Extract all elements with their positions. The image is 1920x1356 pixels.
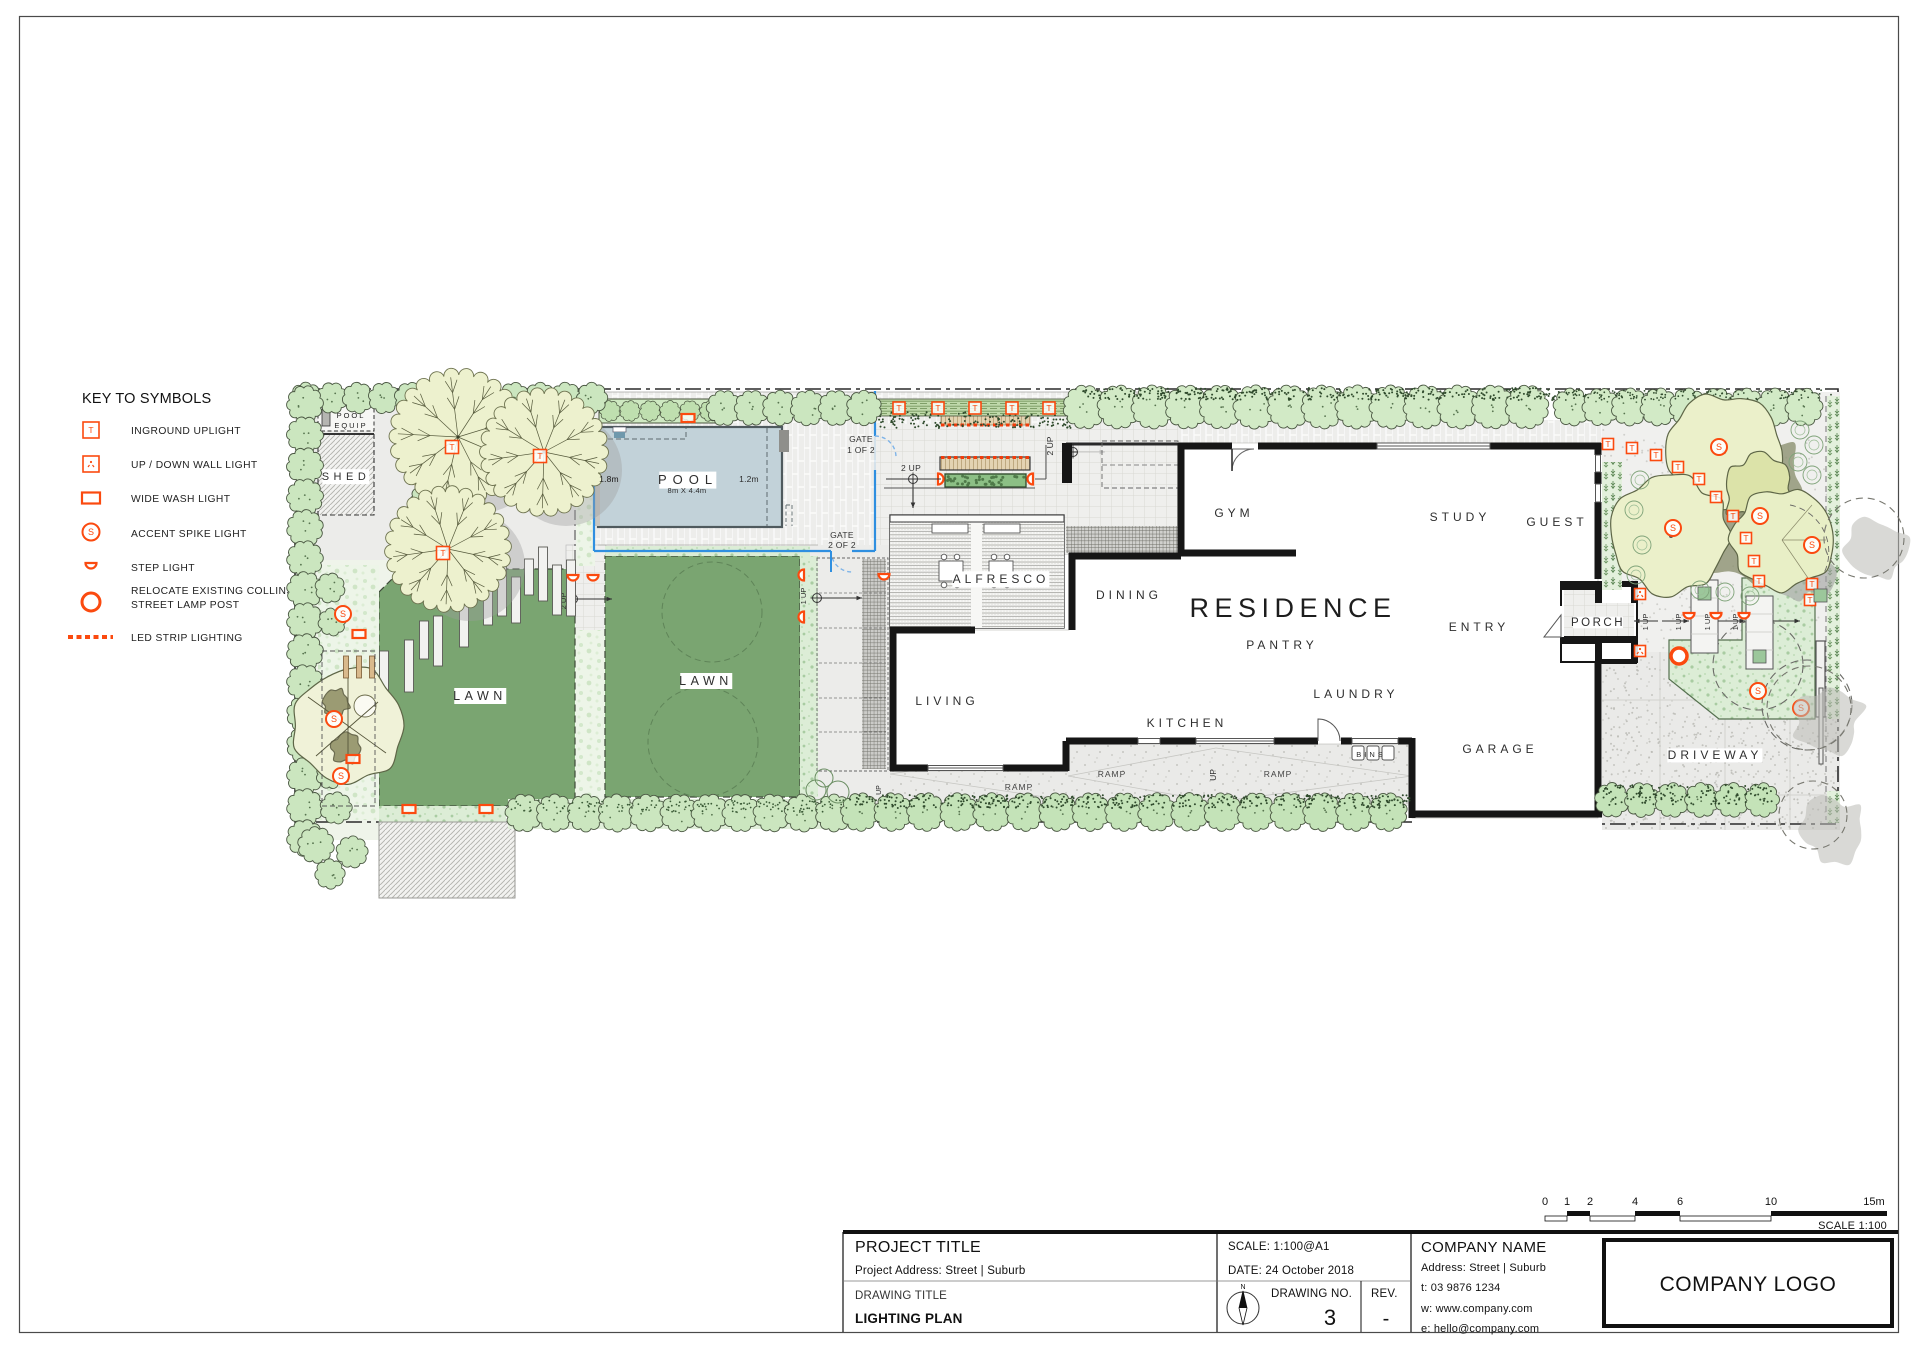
svg-text:15m: 15m	[1863, 1196, 1884, 1208]
svg-text:BINS: BINS	[1356, 750, 1386, 759]
svg-text:SHED: SHED	[322, 471, 371, 483]
svg-text:ENTRY: ENTRY	[1449, 620, 1509, 634]
svg-text:PROJECT TITLE: PROJECT TITLE	[855, 1239, 981, 1256]
svg-text:T: T	[1696, 474, 1701, 484]
svg-text:1 UP: 1 UP	[1641, 614, 1650, 631]
svg-text:S: S	[340, 609, 346, 619]
svg-text:DATE: 24 October 2018: DATE: 24 October 2018	[1228, 1265, 1354, 1277]
svg-text:S: S	[1716, 442, 1722, 452]
svg-text:PORCH: PORCH	[1571, 617, 1625, 629]
svg-text:GARAGE: GARAGE	[1462, 742, 1537, 756]
svg-text:POOL: POOL	[658, 472, 718, 487]
svg-text:t: 03 9876 1234: t: 03 9876 1234	[1421, 1282, 1500, 1294]
svg-text:UP: UP	[1208, 769, 1218, 781]
svg-text:T: T	[1756, 576, 1761, 586]
svg-text:2 OF 2: 2 OF 2	[828, 540, 856, 550]
svg-text:S: S	[1757, 511, 1763, 521]
svg-text:T: T	[1751, 556, 1756, 566]
svg-text:GATE: GATE	[849, 434, 873, 444]
svg-text:LED STRIP LIGHTING: LED STRIP LIGHTING	[131, 633, 243, 644]
svg-text:STEP LIGHT: STEP LIGHT	[131, 563, 195, 574]
svg-text:3: 3	[1324, 1305, 1336, 1330]
svg-text:6: 6	[1677, 1196, 1683, 1208]
svg-text:1 OF 2: 1 OF 2	[847, 445, 875, 455]
svg-text:-: -	[1383, 1308, 1390, 1330]
svg-text:LAWN: LAWN	[679, 674, 733, 688]
svg-text:1 UP: 1 UP	[1674, 614, 1683, 631]
svg-text:T: T	[1605, 439, 1610, 449]
svg-text:T: T	[1713, 492, 1718, 502]
svg-text:DRIVEWAY: DRIVEWAY	[1668, 748, 1763, 762]
svg-text:RAMP: RAMP	[1005, 782, 1034, 792]
svg-text:LAWN: LAWN	[453, 689, 507, 703]
svg-text:DRAWING TITLE: DRAWING TITLE	[855, 1290, 947, 1302]
svg-text:Project Address: Street | Subu: Project Address: Street | Suburb	[855, 1265, 1025, 1277]
svg-text:UP / DOWN WALL LIGHT: UP / DOWN WALL LIGHT	[131, 460, 258, 471]
svg-text:10: 10	[1765, 1196, 1777, 1208]
svg-text:KEY TO SYMBOLS: KEY TO SYMBOLS	[82, 391, 211, 407]
svg-text:T: T	[537, 451, 542, 461]
svg-text:T: T	[1809, 579, 1814, 589]
svg-text:8m X 4.4m: 8m X 4.4m	[668, 486, 707, 495]
svg-text:REV.: REV.	[1371, 1288, 1398, 1300]
svg-text:RAMP: RAMP	[1098, 769, 1127, 779]
svg-text:COMPANY NAME: COMPANY NAME	[1421, 1239, 1547, 1256]
svg-text:LAUNDRY: LAUNDRY	[1313, 687, 1398, 701]
svg-text:N: N	[1240, 1284, 1245, 1291]
svg-text:T: T	[1675, 462, 1680, 472]
svg-text:T: T	[1743, 533, 1748, 543]
svg-text:T: T	[1009, 403, 1014, 413]
svg-text:GUEST: GUEST	[1526, 515, 1587, 529]
svg-text:DINING: DINING	[1096, 588, 1162, 602]
svg-text:PANTRY: PANTRY	[1246, 638, 1318, 652]
svg-text:DRAWING NO.: DRAWING NO.	[1271, 1288, 1352, 1300]
svg-text:Address: Street | Suburb: Address: Street | Suburb	[1421, 1262, 1546, 1274]
svg-text:RELOCATE EXISTING COLLINS: RELOCATE EXISTING COLLINS	[131, 586, 294, 597]
svg-text:ACCENT SPIKE LIGHT: ACCENT SPIKE LIGHT	[131, 529, 247, 540]
svg-text:INGROUND UPLIGHT: INGROUND UPLIGHT	[131, 426, 241, 437]
svg-text:T: T	[935, 403, 940, 413]
svg-text:T: T	[449, 442, 454, 452]
svg-text:WIDE WASH LIGHT: WIDE WASH LIGHT	[131, 494, 231, 505]
svg-text:2 UP: 2 UP	[1045, 436, 1055, 455]
svg-text:KITCHEN: KITCHEN	[1147, 716, 1228, 730]
svg-text:EQUIP: EQUIP	[334, 421, 367, 430]
svg-text:S: S	[88, 527, 94, 537]
svg-text:1.8m: 1.8m	[599, 474, 619, 484]
svg-text:0: 0	[1542, 1196, 1548, 1208]
svg-text:RAMP: RAMP	[1264, 769, 1293, 779]
svg-text:S: S	[338, 771, 344, 781]
svg-text:T: T	[1629, 443, 1634, 453]
svg-text:LIGHTING PLAN: LIGHTING PLAN	[855, 1311, 963, 1326]
svg-text:T: T	[1730, 511, 1735, 521]
svg-text:1: 1	[1564, 1196, 1570, 1208]
svg-text:T: T	[88, 425, 93, 435]
svg-text:RESIDENCE: RESIDENCE	[1189, 593, 1396, 623]
svg-text:GATE: GATE	[830, 530, 854, 540]
svg-text:S: S	[1755, 686, 1761, 696]
svg-text:2 UP: 2 UP	[901, 463, 921, 473]
svg-text:STREET LAMP POST: STREET LAMP POST	[131, 600, 240, 611]
svg-text:4: 4	[1632, 1196, 1638, 1208]
svg-text:GYM: GYM	[1214, 506, 1253, 520]
svg-text:COMPANY LOGO: COMPANY LOGO	[1660, 1273, 1837, 1296]
svg-text:2: 2	[1587, 1196, 1593, 1208]
svg-text:S: S	[1809, 540, 1815, 550]
svg-text:SCALE: 1:100@A1: SCALE: 1:100@A1	[1228, 1241, 1330, 1253]
svg-text:S: S	[331, 714, 337, 724]
svg-text:T: T	[896, 403, 901, 413]
svg-text:w: www.company.com: w: www.company.com	[1420, 1303, 1533, 1315]
svg-text:T: T	[1653, 450, 1658, 460]
svg-text:S: S	[1670, 523, 1676, 533]
svg-text:T: T	[1046, 403, 1051, 413]
svg-text:T: T	[972, 403, 977, 413]
svg-text:ALFRESCO: ALFRESCO	[953, 572, 1050, 586]
svg-text:1 UP: 1 UP	[799, 588, 808, 605]
svg-text:UP: UP	[876, 785, 883, 795]
svg-text:1.2m: 1.2m	[739, 474, 759, 484]
svg-text:e: hello@company.com: e: hello@company.com	[1421, 1323, 1539, 1335]
svg-text:T: T	[1807, 595, 1812, 605]
svg-text:LIVING: LIVING	[915, 694, 978, 708]
svg-text:T: T	[440, 548, 445, 558]
svg-text:STUDY: STUDY	[1430, 510, 1491, 524]
